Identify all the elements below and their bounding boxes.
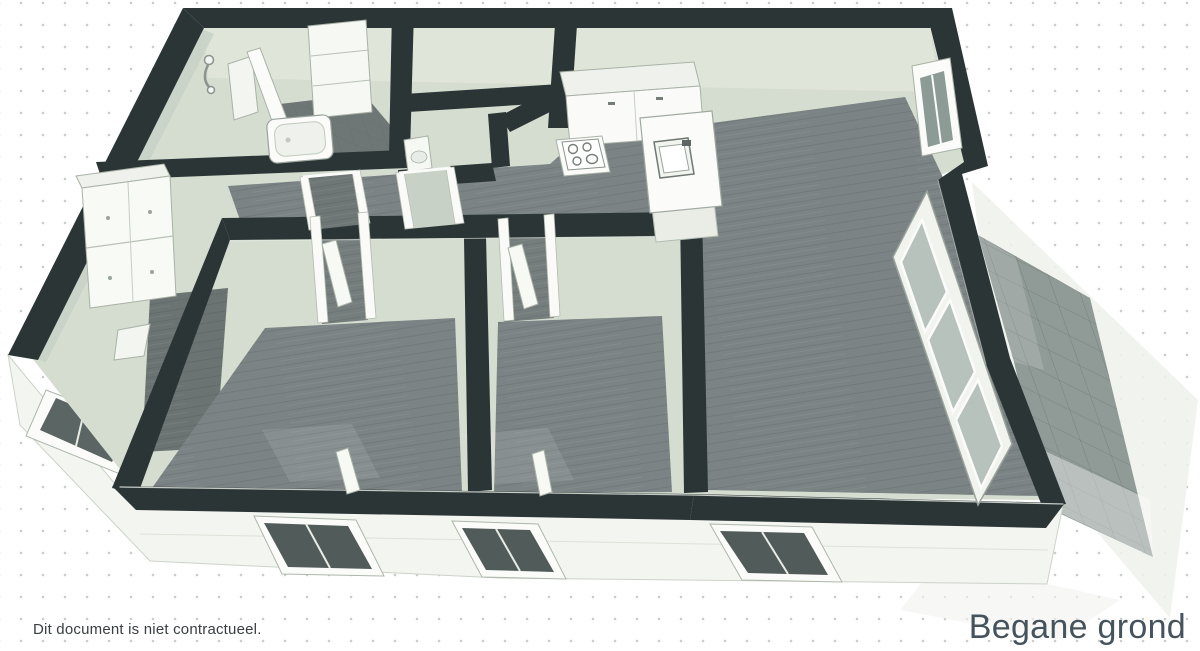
dresser xyxy=(76,164,176,308)
floor-label: Begane grond xyxy=(969,608,1186,647)
faucet xyxy=(682,140,691,146)
island-sink xyxy=(654,138,694,178)
floorplan-document: Dit document is niet contractueel. Began… xyxy=(0,0,1200,651)
entry-bench xyxy=(114,324,150,360)
disclaimer-text: Dit document is niet contractueel. xyxy=(33,621,262,638)
bathroom-east-wall xyxy=(389,10,414,156)
stove xyxy=(556,136,610,176)
bathtub xyxy=(266,114,334,163)
floorplan-3d-render xyxy=(0,0,1200,651)
bathroom-cabinet xyxy=(308,20,372,118)
wc-south-wall-b xyxy=(450,163,496,184)
